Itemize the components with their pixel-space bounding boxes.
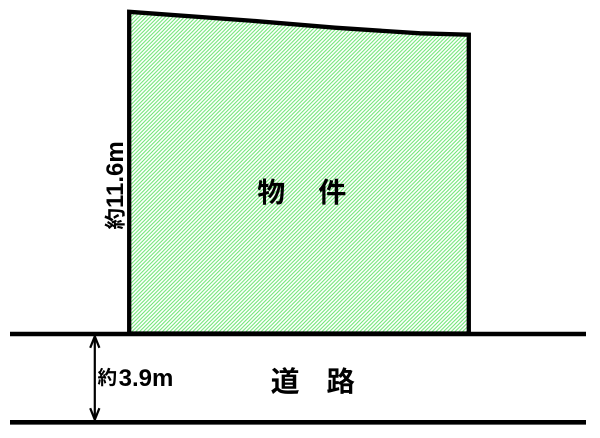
svg-text:3.9m: 3.9m	[119, 365, 174, 392]
svg-text:11.6m: 11.6m	[102, 141, 129, 208]
